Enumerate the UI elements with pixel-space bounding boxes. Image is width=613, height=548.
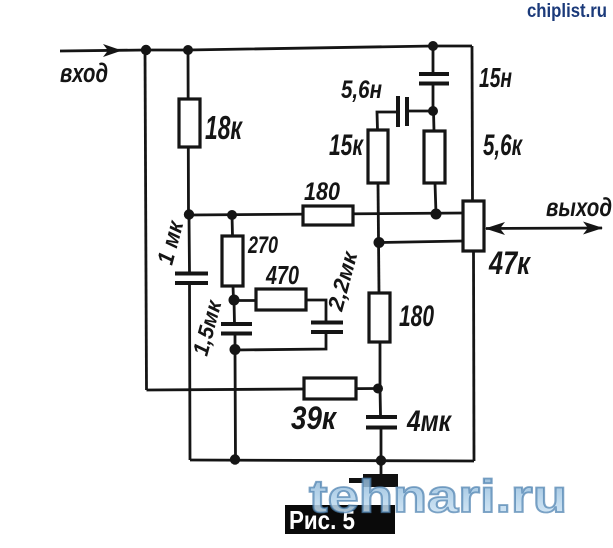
svg-text:4мк: 4мк [406,405,452,438]
svg-text:180: 180 [399,300,434,333]
svg-text:chiplist.ru: chiplist.ru [527,1,607,22]
svg-text:470: 470 [265,260,299,290]
svg-text:выход: выход [546,192,612,222]
svg-text:47к: 47к [488,245,531,281]
svg-text:5,6н: 5,6н [341,76,382,104]
svg-text:18к: 18к [205,109,244,146]
svg-text:180: 180 [304,178,340,206]
svg-text:39к: 39к [291,400,338,436]
svg-text:5,6к: 5,6к [483,129,523,162]
svg-text:15н: 15н [479,62,512,93]
svg-text:вход: вход [60,58,108,88]
svg-text:15к: 15к [329,129,364,162]
svg-text:tehnari.ru: tehnari.ru [309,470,567,522]
svg-text:270: 270 [247,232,278,259]
